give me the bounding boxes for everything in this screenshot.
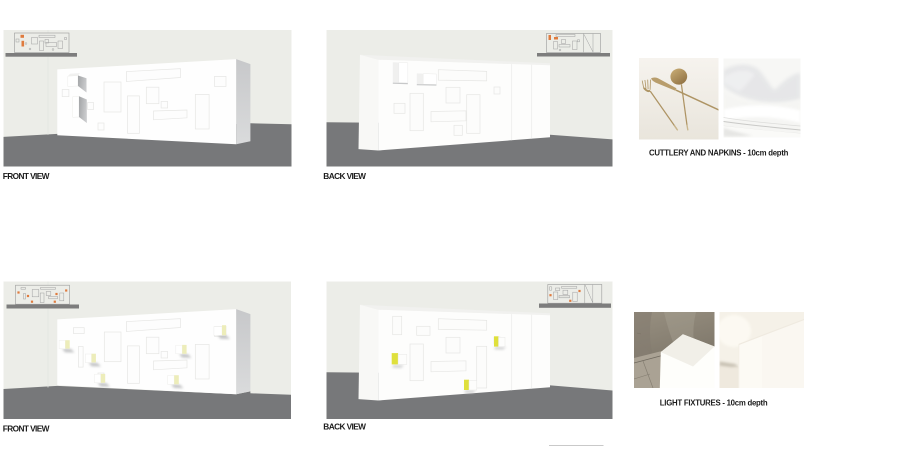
svg-text:BACK VIEW: BACK VIEW: [323, 421, 366, 431]
svg-text:BACK VIEW: BACK VIEW: [323, 171, 366, 181]
svg-text:FRONT VIEW: FRONT VIEW: [3, 171, 50, 181]
svg-text:FRONT VIEW: FRONT VIEW: [3, 423, 50, 433]
svg-text:CUTTLERY AND NAPKINS - 10cm de: CUTTLERY AND NAPKINS - 10cm depth: [649, 148, 789, 157]
svg-text:LIGHT FIXTURES - 10cm depth: LIGHT FIXTURES - 10cm depth: [660, 399, 768, 408]
